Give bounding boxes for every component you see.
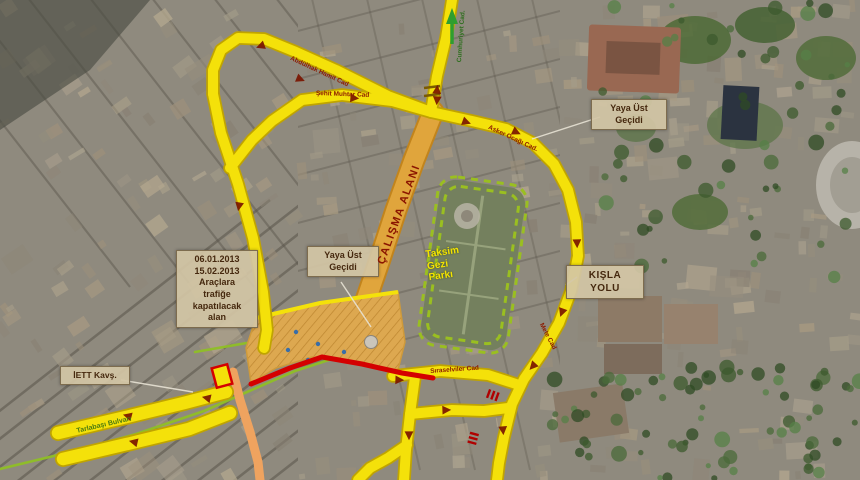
- label-line: Yaya Üst: [596, 103, 662, 115]
- label-line: KIŞLA: [571, 269, 639, 282]
- label-line: kapatılacak: [181, 301, 253, 313]
- kisla-road-label: KIŞLA YOLU: [566, 265, 644, 299]
- closed-junction-marker: [212, 364, 233, 387]
- road-south-2: [410, 408, 508, 414]
- bus-stop-ticks-2: [467, 432, 479, 445]
- gezi-park-label: Taksim Gezi Parkı: [425, 245, 463, 284]
- label-line: trafiğe: [181, 289, 253, 301]
- label-line: Araçlara: [181, 277, 253, 289]
- road-sehit-muhtar: [230, 95, 431, 168]
- label-line: Geçidi: [312, 262, 374, 274]
- traffic-overlay: [0, 0, 860, 480]
- label-line: 06.01.2013: [181, 254, 253, 266]
- iett-label: İETT Kavş.: [60, 366, 130, 385]
- label-line: YOLU: [571, 282, 639, 295]
- label-line: Geçidi: [596, 115, 662, 127]
- road-south-1: [404, 377, 415, 480]
- label-line: İETT Kavş.: [65, 370, 125, 381]
- label-line: Yaya Üst: [312, 250, 374, 262]
- label-line: 15.02.2013: [181, 266, 253, 278]
- bus-stop-ticks: [486, 389, 500, 401]
- satellite-map: 06.01.2013 15.02.2013 Araçlara trafiğe k…: [0, 0, 860, 480]
- label-line: alan: [181, 312, 253, 324]
- pedestrian-overpass-label-north: Yaya Üst Geçidi: [591, 99, 667, 130]
- closure-dates-label: 06.01.2013 15.02.2013 Araçlara trafiğe k…: [176, 250, 258, 328]
- pedestrian-overpass-label-west: Yaya Üst Geçidi: [307, 246, 379, 277]
